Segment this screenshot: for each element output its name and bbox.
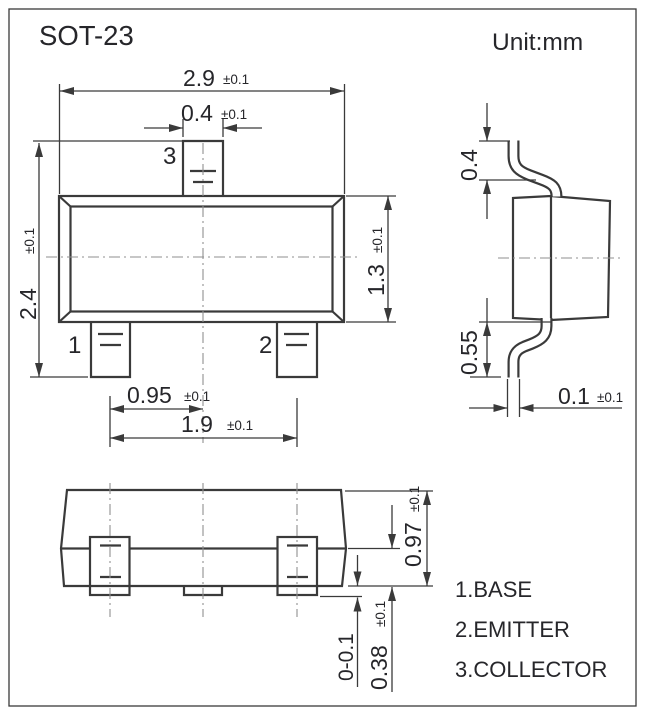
dim-pin-pitch-tol: ±0.1 (184, 389, 210, 404)
dim-total-height-tol: ±0.1 (407, 486, 422, 512)
dim-pin-pitch-value: 0.95 (127, 382, 172, 408)
dim-overall-width-value: 2.9 (183, 65, 215, 91)
dim-overall-height-tol: ±0.1 (22, 228, 37, 254)
dim-overall-height-value: 2.4 (15, 288, 41, 320)
pin1-label: 1 (68, 332, 81, 359)
dim-standoff-value: 0-0.1 (335, 633, 358, 681)
dim-body-height-value: 1.3 (363, 264, 389, 296)
drawing-canvas: SOT-23 Unit:mm (0, 0, 645, 715)
background (0, 0, 645, 715)
dim-lead-height-tol: ±0.1 (373, 601, 388, 627)
pin3-label: 3 (163, 143, 176, 170)
dim-overall-width-tol: ±0.1 (223, 72, 249, 87)
dim-lead-height-value: 0.38 (366, 645, 392, 690)
page-title: SOT-23 (39, 20, 134, 51)
package-drawing: SOT-23 Unit:mm (0, 0, 645, 715)
dim-lead-thickness-tol: ±0.1 (597, 390, 623, 405)
pin2-label: 2 (259, 332, 272, 359)
legend-item-base: 1.BASE (455, 577, 532, 602)
unit-label: Unit:mm (492, 29, 583, 56)
dim-pin-span-value: 1.9 (181, 411, 213, 437)
dim-pin-width-value: 0.4 (181, 100, 213, 126)
legend-item-emitter: 2.EMITTER (455, 617, 570, 642)
dim-lead-bottom-value: 0.55 (456, 330, 482, 375)
legend-item-collector: 3.COLLECTOR (455, 657, 607, 682)
dim-pin-width-tol: ±0.1 (221, 107, 247, 122)
dim-lead-top-value: 0.4 (456, 149, 482, 181)
dim-pin-span-tol: ±0.1 (227, 418, 253, 433)
dim-total-height-value: 0.97 (400, 522, 426, 567)
dim-lead-thickness-value: 0.1 (558, 383, 590, 409)
dim-body-height-tol: ±0.1 (370, 227, 385, 253)
